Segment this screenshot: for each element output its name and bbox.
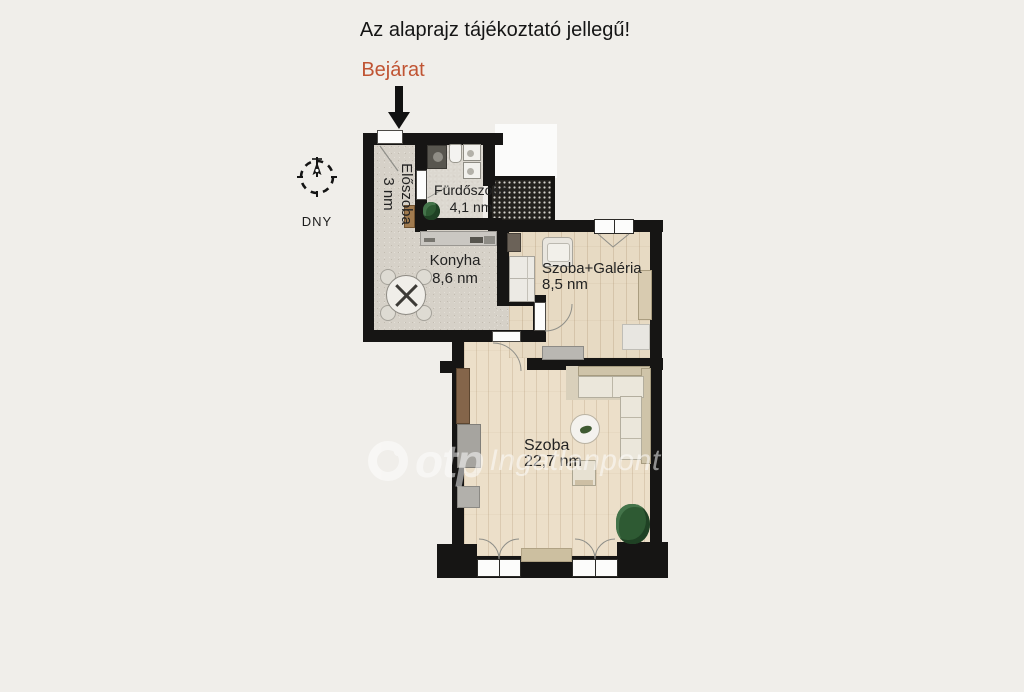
room-label-konyha: Konyha 8,6 nm: [415, 252, 495, 288]
room-name: Előszoba: [397, 158, 415, 230]
dryer: [463, 162, 481, 179]
compass-icon: [294, 154, 340, 200]
bed: [622, 324, 650, 350]
entrance-arrow-shaft: [395, 86, 403, 114]
corner-sofa-seat: [578, 376, 644, 398]
szoba-window-right: [572, 559, 618, 577]
floorplan-page: Az alaprajz tájékoztató jellegű! Bejárat…: [0, 0, 1024, 692]
cabinet-brown: [456, 368, 470, 424]
room-area: 8,5 nm: [542, 277, 652, 293]
sofa-small: [509, 256, 535, 302]
wall-segment: [488, 220, 663, 232]
plant: [616, 504, 650, 544]
room-name: Fürdőszoba: [430, 182, 512, 199]
entrance-arrow-head: [388, 112, 410, 129]
cabinet-gray: [457, 486, 480, 508]
corner-sofa-back: [578, 366, 650, 376]
room-label-szoba-galeria: Szoba+Galéria 8,5 nm: [542, 261, 652, 293]
otp-logo-icon: [368, 441, 408, 481]
basket: [507, 233, 521, 252]
disclaimer-title: Az alaprajz tájékoztató jellegű!: [280, 19, 710, 42]
bathroom-door: [416, 170, 427, 200]
background-patch: [495, 124, 557, 178]
szoba-window-left: [477, 559, 521, 577]
kitchen-counter: [420, 231, 497, 246]
wall-segment: [363, 133, 374, 342]
room-name: Konyha: [415, 252, 495, 270]
bathroom-sink: [427, 145, 447, 169]
room-label-furdoszoba: Fürdőszoba 4,1 nm: [430, 182, 512, 216]
room-label-szoba: Szoba 22,7 nm: [524, 438, 614, 470]
galeria-window: [594, 219, 634, 234]
entrance-door: [377, 130, 403, 144]
room-area: 3 nm: [379, 158, 397, 230]
room-area: 22,7 nm: [524, 454, 614, 470]
galeria-door: [534, 302, 546, 331]
room-label-eloszoba: Előszoba 3 nm: [379, 158, 415, 230]
toilet: [449, 144, 462, 163]
room-name: Szoba: [524, 438, 614, 454]
washing-machine: [463, 144, 481, 161]
cabinet-gray: [457, 424, 481, 468]
wall-segment: [483, 133, 495, 186]
szoba-door: [492, 331, 521, 342]
room-area: 8,6 nm: [415, 270, 495, 288]
compass-direction-label: DNY: [297, 214, 337, 229]
corner-sofa-seat: [620, 396, 642, 460]
room-name: Szoba+Galéria: [542, 261, 652, 277]
wall-segment: [440, 361, 454, 373]
entrance-label: Bejárat: [352, 59, 434, 82]
room-area: 4,1 nm: [430, 199, 512, 216]
wardrobe: [542, 346, 584, 360]
doormat: [521, 548, 572, 562]
